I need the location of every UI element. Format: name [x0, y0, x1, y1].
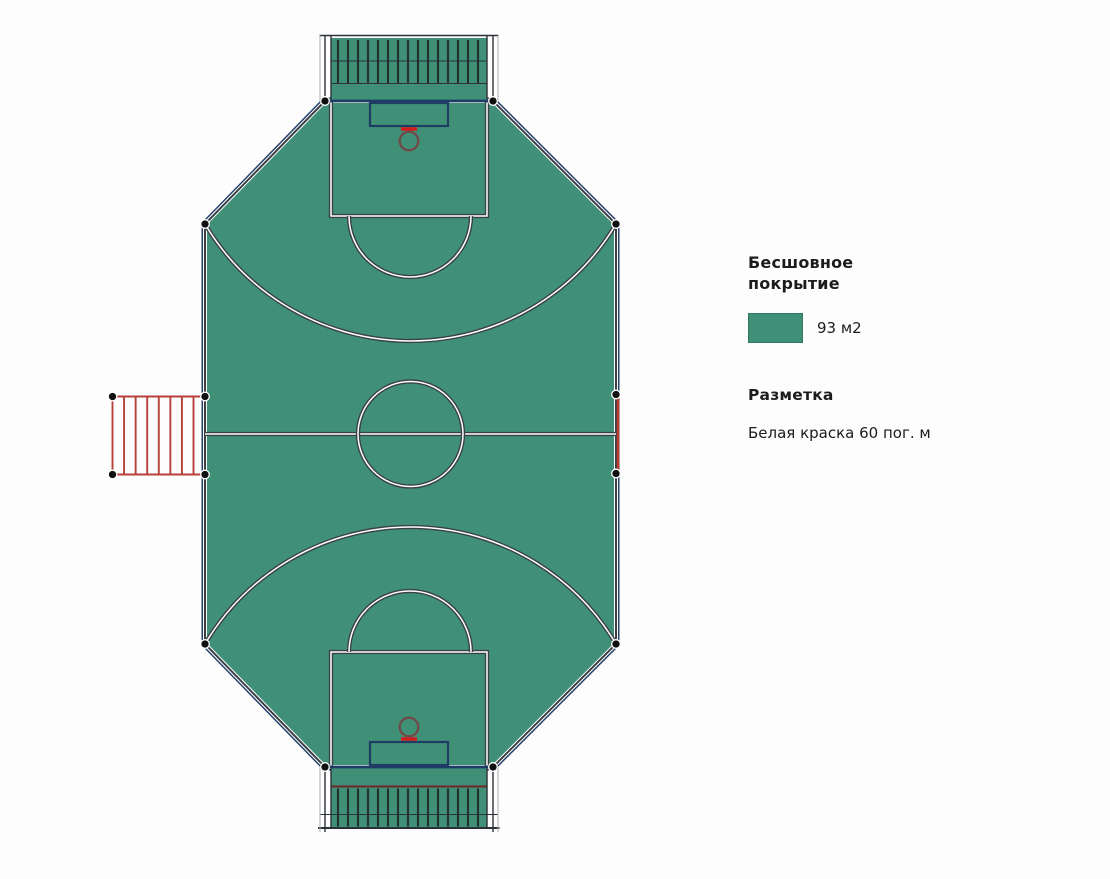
- anchor-dot: [321, 763, 330, 772]
- anchor-dot: [201, 640, 210, 649]
- top-fence-bars: [338, 40, 478, 84]
- coating-swatch: [748, 313, 803, 343]
- anchor-dot: [612, 220, 621, 229]
- marking-title: Разметка: [748, 386, 958, 404]
- anchor-dot: [201, 392, 210, 401]
- anchor-dot: [201, 220, 210, 229]
- coating-title: Бесшовное покрытие: [748, 252, 868, 294]
- bottom-fence-bars: [338, 789, 478, 827]
- anchor-dot: [108, 392, 117, 401]
- anchor-dot: [489, 97, 498, 106]
- anchor-dot: [489, 763, 498, 772]
- anchor-dot: [612, 390, 621, 399]
- bottom-fence: [318, 767, 500, 832]
- top-fence: [320, 36, 499, 102]
- page: { "legend": { "coating_title": "Бесшовно…: [0, 0, 1110, 879]
- coating-legend-row: 93 м2: [748, 313, 958, 343]
- anchor-dot: [612, 640, 621, 649]
- legend: Бесшовное покрытие 93 м2 Разметка Белая …: [748, 252, 958, 442]
- marking-value: Белая краска 60 пог. м: [748, 424, 958, 442]
- anchor-dot: [201, 470, 210, 479]
- coating-area-value: 93 м2: [817, 319, 862, 337]
- anchor-dot: [321, 97, 330, 106]
- anchor-dot: [612, 469, 621, 478]
- ladder: [113, 397, 206, 475]
- anchor-dot: [108, 470, 117, 479]
